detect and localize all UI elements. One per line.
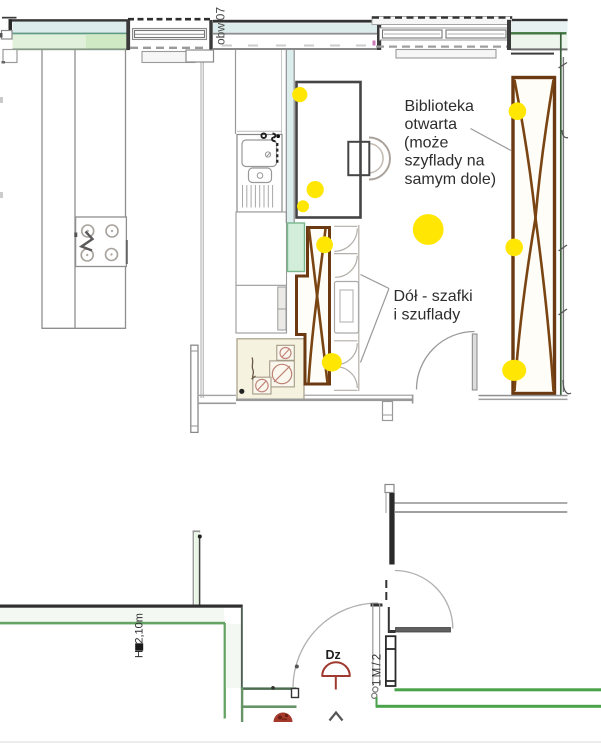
svg-text:samym dole): samym dole): [405, 171, 497, 188]
svg-text:1M/2: 1M/2: [372, 652, 384, 686]
svg-text:Biblioteka: Biblioteka: [405, 98, 474, 115]
svg-text:otwarta: otwarta: [405, 116, 458, 133]
svg-text:szyflady na: szyflady na: [405, 153, 485, 170]
svg-text:Dół - szafki: Dół - szafki: [394, 288, 473, 305]
svg-text:i szuflady: i szuflady: [394, 306, 461, 323]
svg-text:(może: (może: [404, 134, 449, 151]
svg-text:Dz: Dz: [326, 648, 341, 662]
svg-text:H=2,10m: H=2,10m: [134, 613, 146, 658]
svg-text:obw.07: obw.07: [214, 7, 228, 45]
